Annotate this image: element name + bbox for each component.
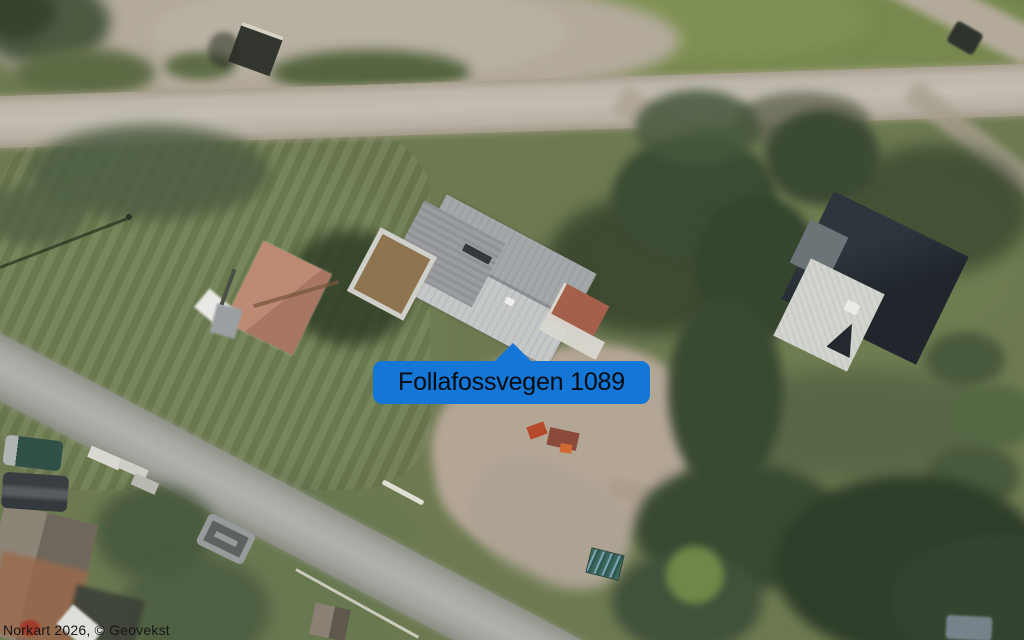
car-teal-west [2,435,63,472]
tree-strip-center [668,295,783,490]
marker-pointer-arrow [494,343,532,362]
address-marker[interactable]: Follafossvegen 1089 [373,361,650,404]
aerial-map[interactable]: Follafossvegen 1089 Norkart 2026, © Geov… [0,0,1024,640]
car-bottomright [945,615,992,640]
shrubs-right-edge1 [925,332,1005,387]
equipment-orange [559,443,572,454]
road-edge-marking [382,479,425,505]
car-dark-west [1,472,69,513]
map-attribution: Norkart 2026, © Geovekst [3,622,170,638]
tree-overhang-road [635,90,760,165]
marker-label: Follafossvegen 1089 [398,368,625,397]
grass-mound-top [15,48,155,98]
bright-bush-bottom [666,546,724,604]
shed-north-shadow [208,32,240,68]
pole-base-lawn [126,214,132,220]
tree-above-east-house [765,110,880,205]
shed-south [309,603,351,640]
